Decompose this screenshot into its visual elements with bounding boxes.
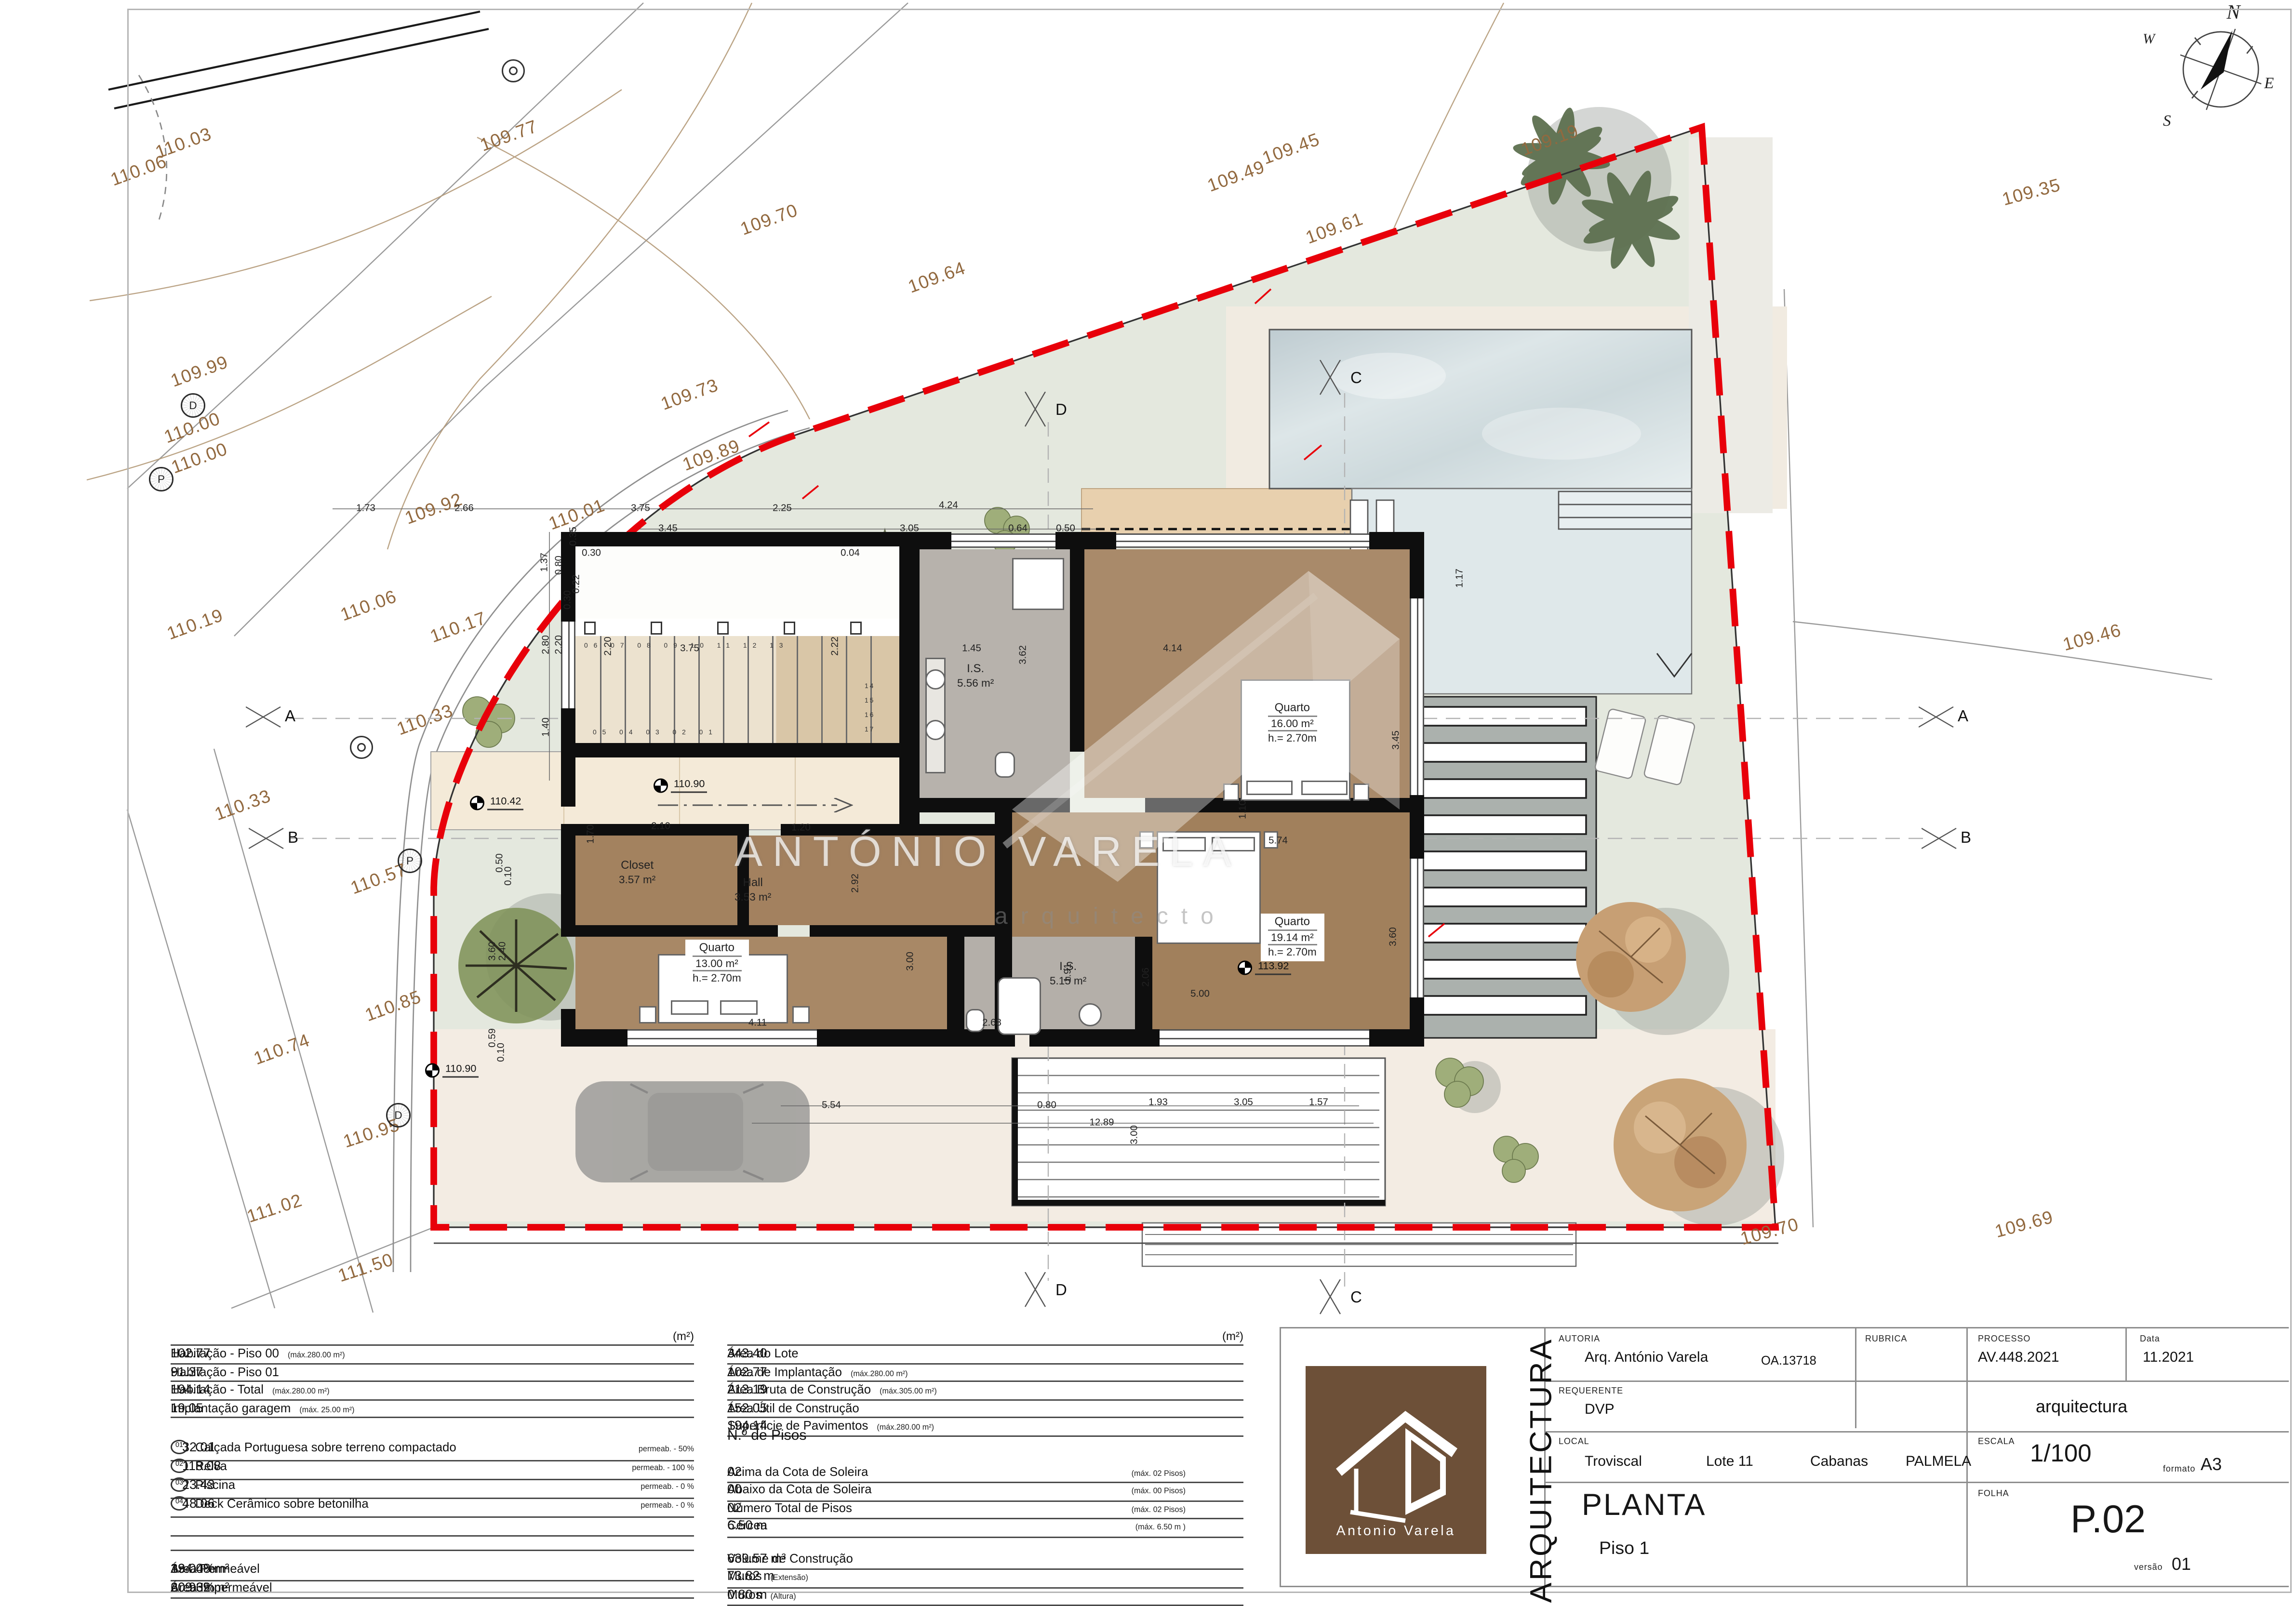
data-value: 11.2021 bbox=[2143, 1350, 2194, 1366]
logo-house-icon bbox=[1324, 1402, 1468, 1524]
requerente-label: REQUERENTE bbox=[1559, 1388, 1623, 1396]
formato-label: formato bbox=[2163, 1466, 2195, 1474]
local-troviscal: Troviscal bbox=[1585, 1454, 1642, 1470]
escala-value: 1/100 bbox=[2030, 1440, 2092, 1469]
plan-sheet: ANTÓNIO VARELA arquitecto 110.03110.0610… bbox=[0, 0, 2296, 1596]
title-block: Antonio Varela ARQUITECTURA AUTORIA Arq.… bbox=[0, 0, 2296, 1597]
processo-label: PROCESSO bbox=[1978, 1336, 2030, 1344]
titleblock-discipline-vertical: ARQUITECTURA bbox=[1525, 1337, 1560, 1603]
autoria-label: AUTORIA bbox=[1559, 1336, 1600, 1344]
folha-value: P.02 bbox=[2070, 1498, 2146, 1542]
logo: Antonio Varela bbox=[1306, 1366, 1486, 1554]
local-cabanas: Cabanas bbox=[1810, 1454, 1868, 1470]
local-lote: Lote 11 bbox=[1706, 1454, 1753, 1470]
discipline-value: arquitectura bbox=[2036, 1396, 2127, 1417]
local-label: LOCAL bbox=[1559, 1438, 1589, 1447]
logo-name: Antonio Varela bbox=[1336, 1524, 1456, 1540]
autoria-value: Arq. António Varela bbox=[1585, 1350, 1708, 1366]
requerente-value: DVP bbox=[1585, 1402, 1615, 1418]
processo-value: AV.448.2021 bbox=[1978, 1350, 2059, 1366]
autoria-o a: OA.13718 bbox=[1761, 1353, 1816, 1367]
folha-label: FOLHA bbox=[1978, 1490, 2009, 1499]
rubrica-label: RUBRICA bbox=[1865, 1336, 1907, 1344]
versao-value: 01 bbox=[2172, 1554, 2191, 1574]
table-rule bbox=[171, 1597, 694, 1599]
formato-value: A3 bbox=[2201, 1454, 2222, 1474]
drawing-title: PLANTA bbox=[1582, 1489, 1706, 1524]
escala-label: ESCALA bbox=[1978, 1438, 2015, 1447]
drawing-subtitle: Piso 1 bbox=[1599, 1538, 1649, 1558]
local-palmela: PALMELA bbox=[1906, 1454, 1971, 1470]
data-label: Data bbox=[2140, 1336, 2160, 1344]
versao-label: versão bbox=[2134, 1564, 2163, 1573]
